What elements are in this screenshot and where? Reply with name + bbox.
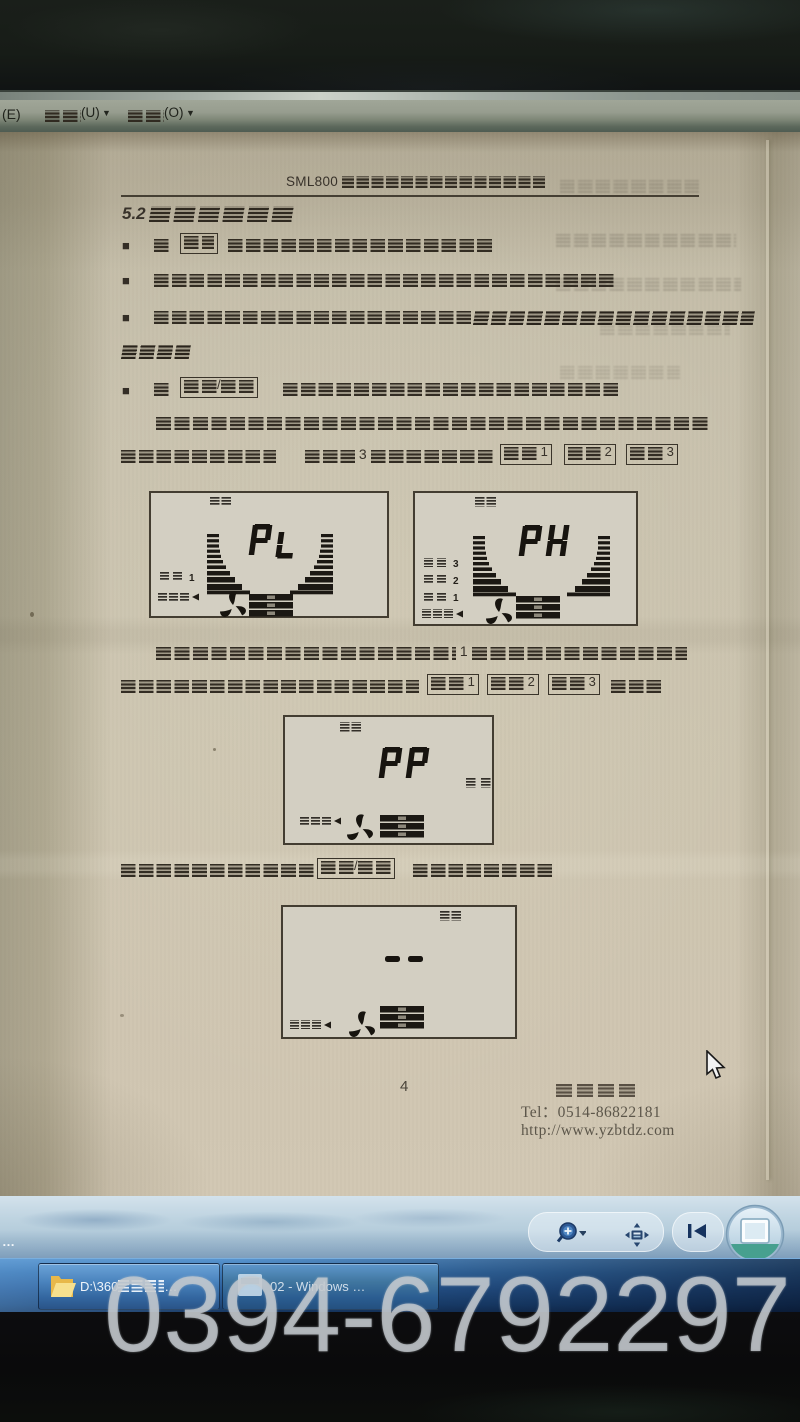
svg-text:3: 3 bbox=[453, 559, 459, 570]
svg-text:1: 1 bbox=[189, 573, 195, 584]
svg-text:1: 1 bbox=[453, 593, 459, 604]
svg-text:2: 2 bbox=[453, 576, 459, 587]
